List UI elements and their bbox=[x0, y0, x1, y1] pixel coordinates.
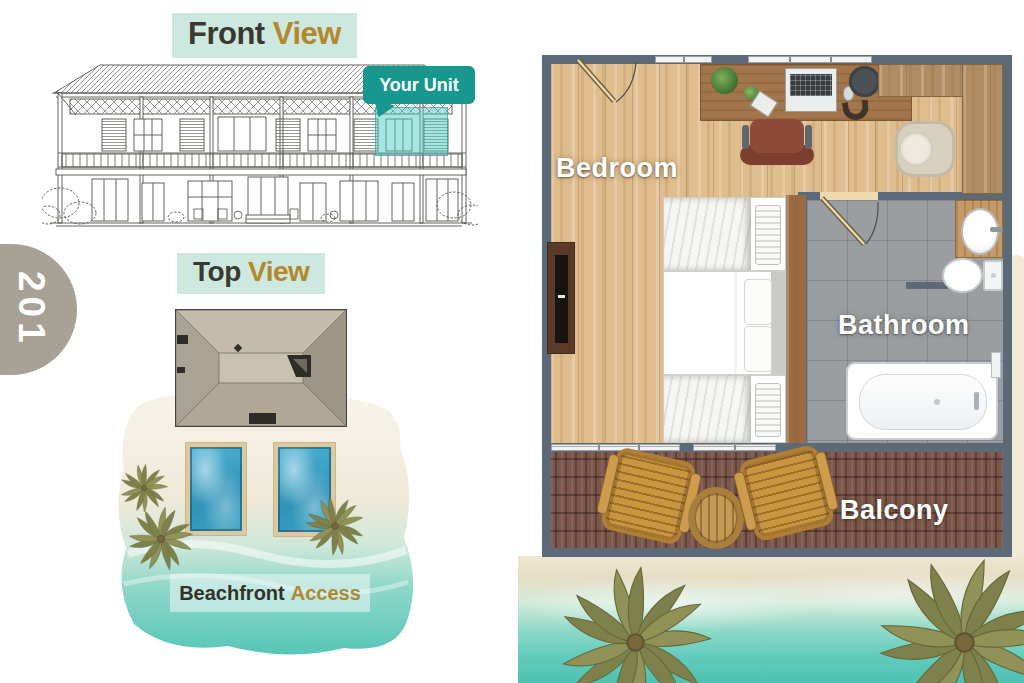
pillow bbox=[744, 279, 772, 325]
caption-primary: Beachfront bbox=[179, 582, 285, 605]
toilet-partition-wall bbox=[906, 282, 948, 289]
wardrobe-right bbox=[962, 64, 1003, 194]
window bbox=[748, 56, 872, 63]
sun-hat bbox=[849, 66, 880, 97]
chair-armrest bbox=[805, 125, 812, 149]
twin-bed-top bbox=[663, 197, 786, 271]
towel-rail bbox=[991, 352, 1001, 378]
potted-plant-icon bbox=[711, 67, 738, 94]
duvet bbox=[664, 198, 751, 270]
pillow bbox=[744, 326, 772, 372]
balcony-window bbox=[693, 444, 776, 451]
headphones-icon bbox=[842, 99, 870, 121]
chair-seat bbox=[750, 119, 804, 153]
front-view-title-accent: View bbox=[273, 16, 341, 51]
bathtub bbox=[846, 362, 998, 440]
double-bed bbox=[663, 271, 786, 375]
caption-accent: Access bbox=[291, 582, 361, 605]
palm-tree-icon bbox=[553, 560, 718, 683]
bedroom-door-swing bbox=[572, 57, 644, 115]
toilet bbox=[942, 258, 983, 293]
balcony-table bbox=[688, 487, 744, 549]
bathroom-door-swing bbox=[818, 194, 882, 258]
front-view-title-primary: Front bbox=[188, 16, 265, 51]
window bbox=[655, 56, 712, 63]
bathtub-basin bbox=[859, 374, 987, 430]
bathroom-label: Bathroom bbox=[838, 310, 970, 341]
tv-screen bbox=[555, 255, 568, 343]
unit-number-badge: 201 bbox=[0, 244, 77, 375]
balcony-chair-left bbox=[604, 451, 692, 541]
laptop-keyboard bbox=[790, 74, 832, 96]
laptop bbox=[785, 68, 837, 112]
duvet bbox=[664, 376, 751, 442]
toilet-tank bbox=[983, 260, 1003, 291]
chair-armrest bbox=[742, 125, 749, 149]
beachfront-access-caption: Beachfront Access bbox=[170, 574, 370, 612]
bathtub-faucet bbox=[974, 392, 979, 410]
bathtub-drain bbox=[934, 399, 940, 405]
tv-console bbox=[547, 242, 575, 354]
unit-number: 201 bbox=[10, 271, 52, 348]
sink-faucet bbox=[990, 227, 1003, 232]
bed-frame-wood bbox=[786, 195, 806, 443]
top-view-title-accent: View bbox=[248, 256, 309, 287]
desk-chair bbox=[740, 119, 814, 167]
headboard bbox=[771, 272, 785, 374]
front-view-title: Front View bbox=[172, 13, 357, 58]
top-view-title-primary: Top bbox=[193, 256, 241, 287]
twin-bed-bottom bbox=[663, 375, 786, 443]
your-unit-callout: Your Unit bbox=[363, 66, 475, 104]
armchair bbox=[895, 121, 955, 177]
bedroom-label: Bedroom bbox=[556, 153, 678, 184]
unit-201-floorplan-infographic: Front View bbox=[0, 0, 1024, 683]
armchair-cushion bbox=[899, 132, 933, 166]
pillow bbox=[755, 205, 781, 265]
villa-roof-topview bbox=[175, 309, 347, 427]
balcony-label: Balcony bbox=[840, 495, 949, 526]
top-view-title: Top View bbox=[177, 253, 325, 294]
your-unit-callout-label: Your Unit bbox=[379, 75, 459, 96]
sink-counter bbox=[955, 200, 1003, 258]
pillow bbox=[755, 383, 781, 438]
unit-floor-plan: Bedroom Bathroom Balcony bbox=[542, 55, 1012, 557]
balcony-window bbox=[551, 444, 680, 451]
